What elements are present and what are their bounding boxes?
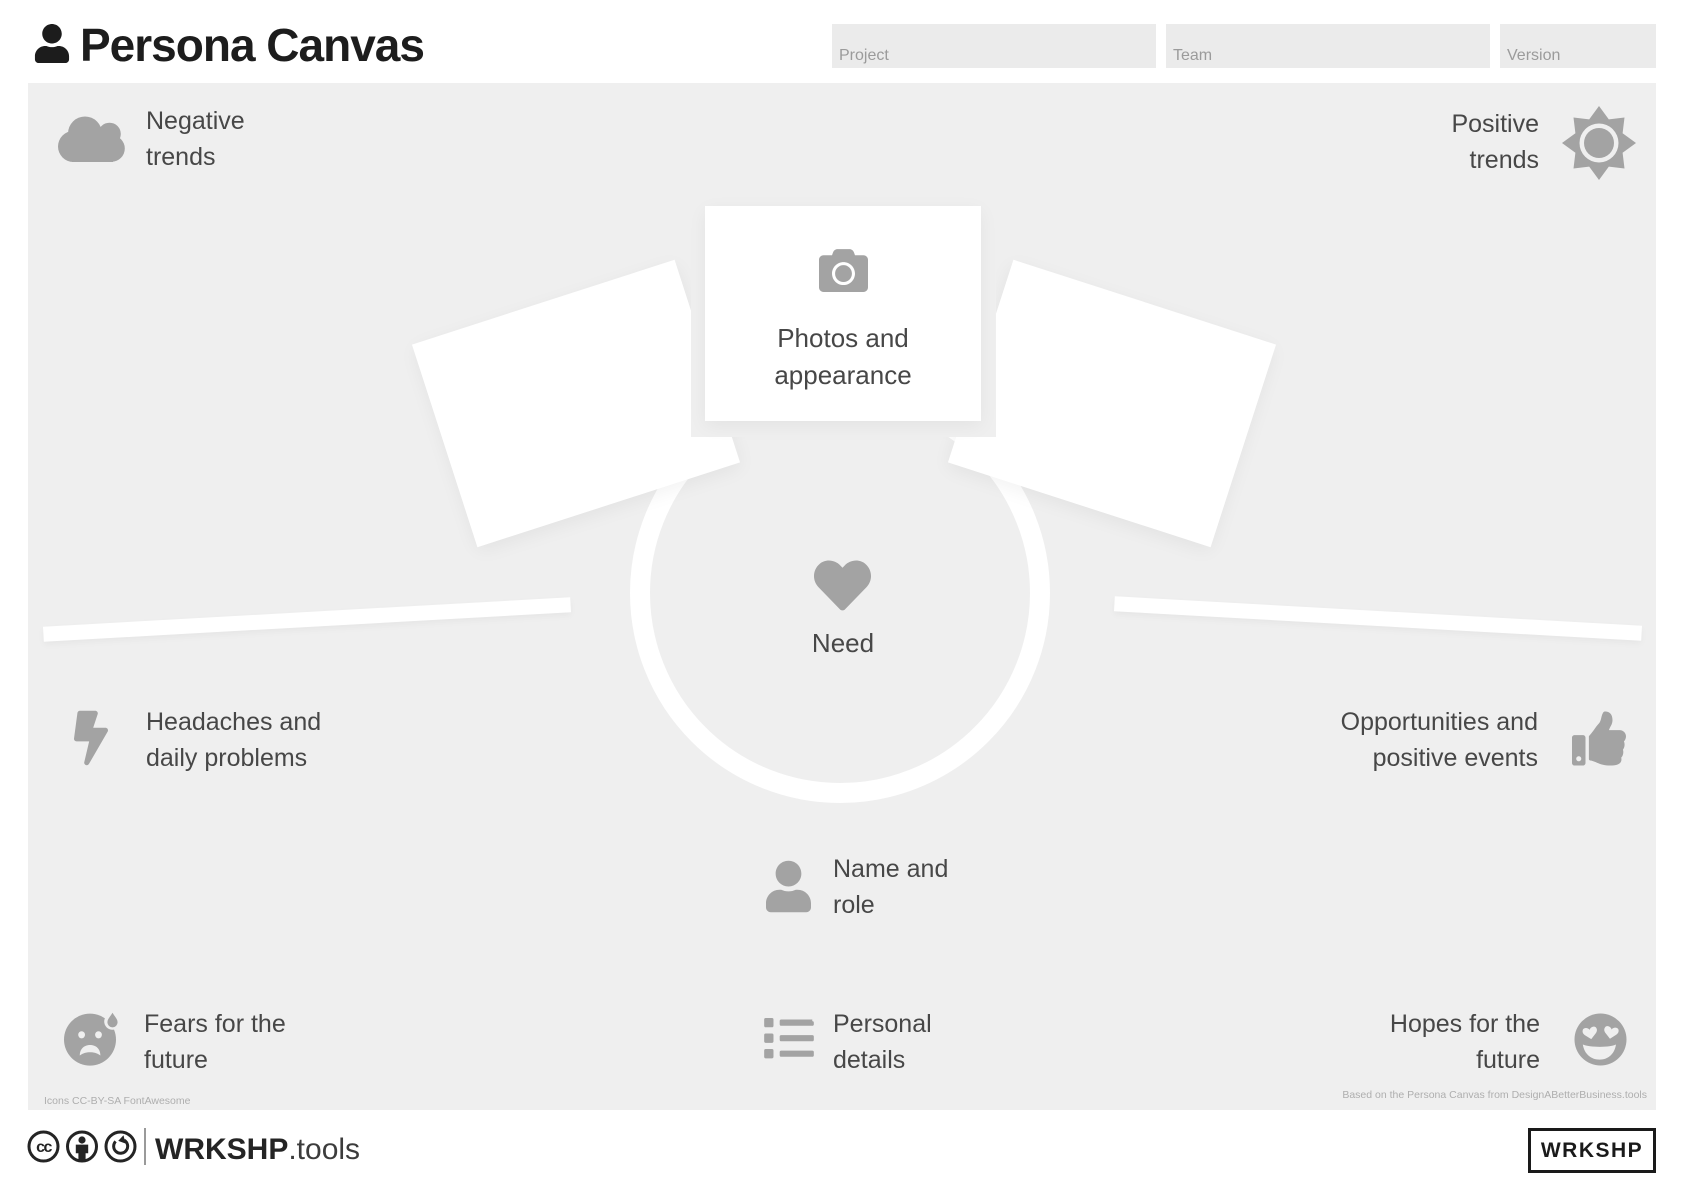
svg-text:cc: cc — [36, 1139, 52, 1156]
